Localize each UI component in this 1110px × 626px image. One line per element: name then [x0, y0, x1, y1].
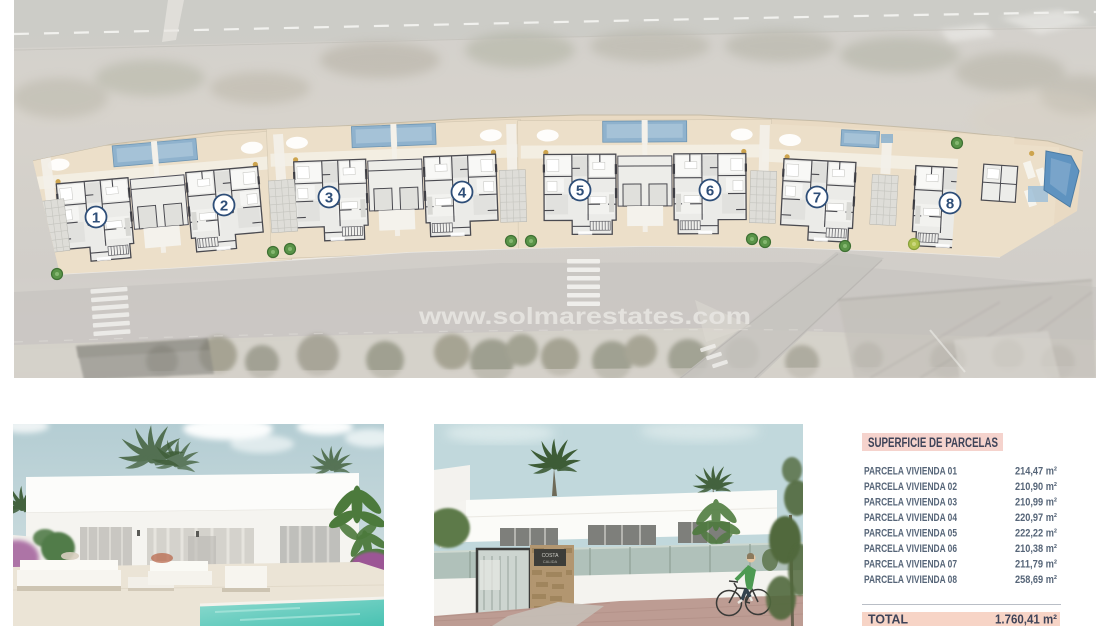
svg-text:PARCELA VIVIENDA 08: PARCELA VIVIENDA 08: [864, 574, 957, 586]
svg-text:PARCELA VIVIENDA 03: PARCELA VIVIENDA 03: [864, 497, 957, 509]
svg-text:TOTAL: TOTAL: [868, 613, 908, 626]
svg-text:SUPERFICIE DE PARCELAS: SUPERFICIE DE PARCELAS: [868, 435, 998, 450]
svg-text:258,69 m²: 258,69 m²: [1015, 574, 1057, 586]
svg-text:PARCELA VIVIENDA 06: PARCELA VIVIENDA 06: [864, 543, 957, 555]
svg-text:6: 6: [706, 183, 714, 200]
svg-text:CALIDA: CALIDA: [543, 559, 558, 564]
svg-text:210,99 m²: 210,99 m²: [1015, 497, 1057, 509]
svg-text:222,22 m²: 222,22 m²: [1015, 528, 1057, 540]
svg-text:7: 7: [813, 190, 821, 207]
svg-text:210,90 m²: 210,90 m²: [1015, 481, 1057, 493]
svg-text:PARCELA VIVIENDA 02: PARCELA VIVIENDA 02: [864, 481, 957, 493]
svg-text:214,47 m²: 214,47 m²: [1015, 466, 1057, 478]
svg-text:3: 3: [325, 190, 333, 207]
svg-text:PARCELA VIVIENDA 04: PARCELA VIVIENDA 04: [864, 512, 958, 524]
svg-text:220,97 m²: 220,97 m²: [1015, 512, 1057, 524]
svg-text:www.solmarestates.com: www.solmarestates.com: [418, 303, 751, 329]
svg-text:2: 2: [220, 198, 228, 215]
svg-text:210,38 m²: 210,38 m²: [1015, 543, 1057, 555]
svg-text:PARCELA VIVIENDA 05: PARCELA VIVIENDA 05: [864, 528, 957, 540]
svg-text:8: 8: [946, 196, 954, 213]
svg-text:4: 4: [458, 185, 467, 202]
svg-text:PARCELA VIVIENDA 01: PARCELA VIVIENDA 01: [864, 466, 957, 478]
svg-text:5: 5: [576, 183, 584, 200]
svg-text:1.760,41 m²: 1.760,41 m²: [995, 613, 1057, 626]
svg-text:211,79 m²: 211,79 m²: [1015, 559, 1057, 571]
svg-text:PARCELA VIVIENDA 07: PARCELA VIVIENDA 07: [864, 559, 957, 571]
svg-text:1: 1: [92, 210, 100, 227]
